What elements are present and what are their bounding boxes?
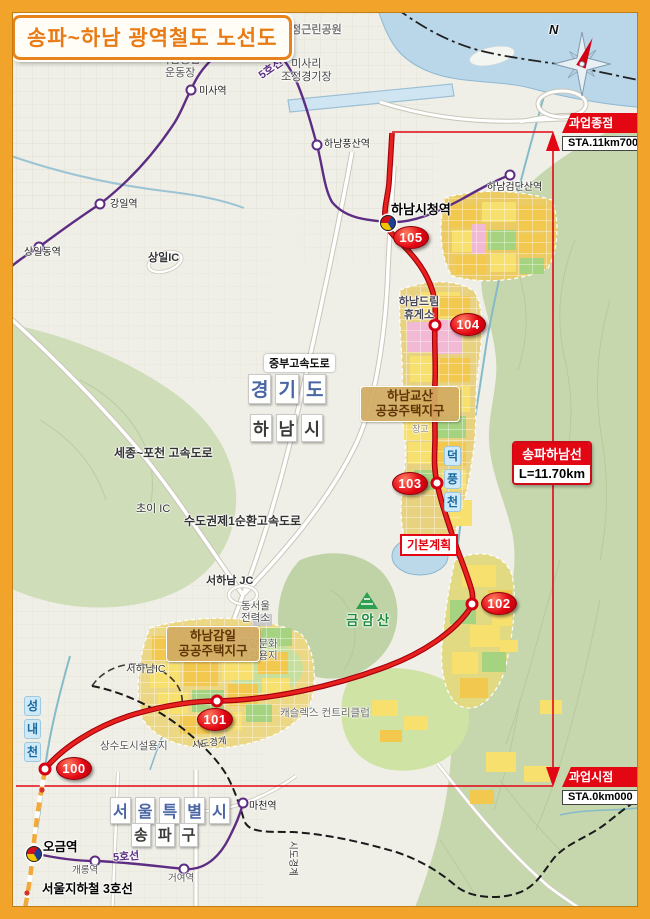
transfer-marker-hanam-cityhall [380,215,396,231]
rest-area-label: 하남드림 휴게소 [394,296,444,321]
station-badge-101: 101 [197,708,233,731]
station-sangildong-label: 상일동역 [24,247,61,259]
station-hanam-cityhall-label: 하남시청역 [391,203,451,218]
country-club-label: 캐슬렉스 컨트리클럽 [280,707,370,719]
station-badge-104: 104 [450,313,486,336]
zone-gyosan-label: 하남교산 공공주택지구 [360,386,460,422]
station-gaerong-label: 개롱역 [72,866,98,877]
region-songpa: 송파구 [129,823,200,847]
warehouse-label: 창고 [412,424,429,434]
basic-plan-label: 기본계획 [400,534,458,556]
line-name: 송파하남선 [514,443,590,465]
road-choi-ic-label: 초이 IC [136,503,170,516]
stream-deokpungcheon: 덕풍천 [444,446,461,512]
project-end-sta: STA.11km700 [562,136,644,151]
project-end-flag: 과업종점 STA.11km700 [562,113,644,151]
line3-label: 서울지하철 3호선 [42,882,133,896]
station-pungsan-label: 하남풍산역 [324,139,370,151]
region-hanam: 하남시 [248,414,325,442]
station-badge-103: 103 [392,472,428,495]
road-sangil-ic-label: 상일IC [148,252,179,265]
power-plant-label: 동서울 전력소 [241,600,270,624]
project-start-sta: STA.0km000 [562,790,639,805]
project-start-label: 과업시점 [562,767,639,787]
map-title: 송파~하남 광역철도 노선도 [12,15,292,60]
road-ring-expressway-label: 수도권제1순환고속도로 [184,515,301,529]
station-badge-102: 102 [481,592,517,615]
boundary-label-2: 시도경계 [286,841,297,876]
zone-gamil-label: 하남감일 공공주택지구 [166,626,260,662]
station-badge-105: 105 [393,226,429,249]
station-geoyeo-label: 거여역 [168,874,194,885]
project-start-flag: 과업시점 STA.0km000 [562,767,639,805]
region-seoul: 서울특별시 [108,797,232,824]
transfer-marker-ogeum [26,846,42,862]
compass-north-label: N [549,23,558,38]
station-misa-label: 미사역 [199,86,227,98]
misari-venue-label: 미사리 조정경기장 [281,58,332,83]
road-seohanam-jc-label: 서하남 JC [206,575,253,588]
project-end-label: 과업종점 [562,113,644,133]
geumamsan-label: 금암산 [346,613,392,629]
line5-label-bottom: 5호선 [113,850,140,864]
route-map: 송파~하남 광역철도 노선도 N 과업종점 STA.11km700 과업시점 S… [0,0,650,919]
stream-seongnaecheon: 성내천 [24,696,41,762]
station-gangil-label: 강일역 [110,199,138,211]
road-jungbu-label: 중부고속도로 [264,354,335,372]
road-seohanam-ic-label: 서하남IC [126,663,165,675]
station-badge-100: 100 [56,757,92,780]
road-sejong-pocheon-label: 세종~포천 고속도로 [114,447,213,461]
station-macheon-label: 마천역 [249,801,277,813]
station-ogeum-label: 오금역 [43,840,78,854]
waterworks-label: 상수도시설용지 [100,740,168,752]
line-length: L=11.70km [514,465,590,483]
line-info-box: 송파하남선 L=11.70km [512,441,592,485]
region-gyeonggi: 경기도 [246,374,328,404]
station-geomdansan-label: 하남검단산역 [487,182,542,194]
